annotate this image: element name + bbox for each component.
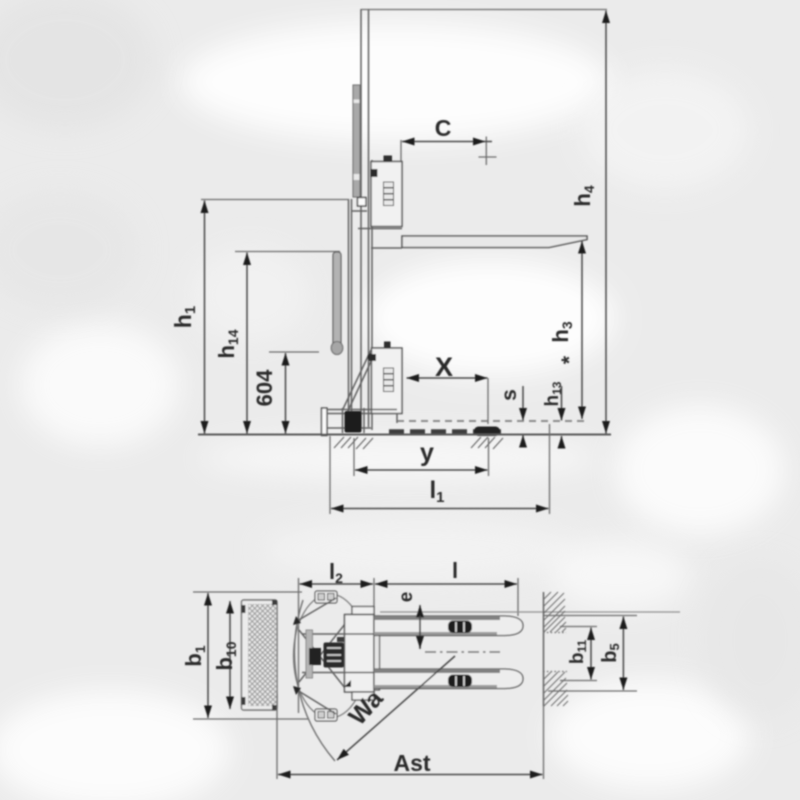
svg-text:s: s	[498, 389, 521, 401]
svg-text:*: *	[558, 355, 581, 364]
svg-text:e: e	[396, 592, 417, 603]
svg-text:C: C	[435, 115, 452, 141]
svg-text:X: X	[435, 352, 453, 382]
svg-text:Ast: Ast	[393, 750, 430, 776]
svg-text:y: y	[420, 439, 434, 467]
svg-text:604: 604	[252, 369, 277, 406]
svg-text:l: l	[452, 558, 458, 583]
